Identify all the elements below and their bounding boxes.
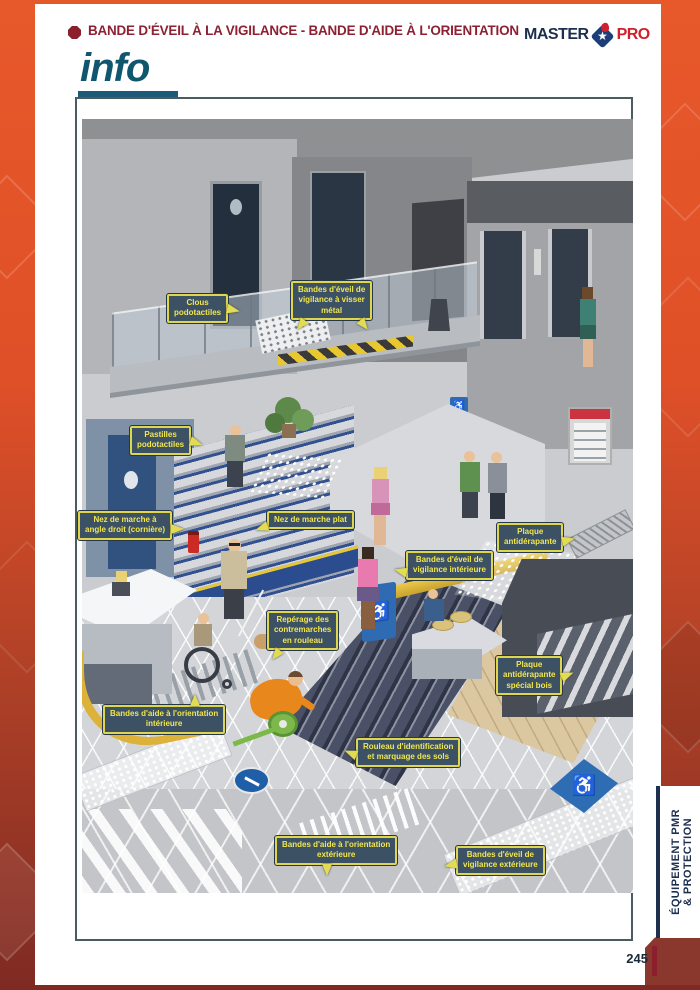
- blind-man-glasses: [229, 543, 240, 546]
- section-tab-line2: & PROTECTION: [682, 818, 694, 906]
- brand-master-text: MASTER: [524, 26, 589, 44]
- wheelchair-user: [198, 613, 209, 624]
- woman-pink-top: [361, 601, 375, 629]
- section-tab-line1: ÉQUIPEMENT PMR: [670, 809, 682, 915]
- frame-left-band: [0, 0, 35, 990]
- diamond-pattern: [0, 843, 35, 962]
- elevator-call-panel: [534, 249, 541, 275]
- door-window: [230, 199, 242, 215]
- display-case: [568, 407, 612, 465]
- woman-pink-top: [357, 587, 379, 601]
- man-at-counter: [428, 589, 438, 599]
- blonde-woman: [371, 503, 390, 515]
- wheelchair-front-wheel: [222, 679, 232, 689]
- blonde-woman: [372, 479, 389, 503]
- blue-floor-marker: [233, 767, 270, 794]
- frame-top-strip: [0, 0, 700, 4]
- wheelchair-wheel: [184, 647, 220, 683]
- catalog-page: BANDE D'ÉVEIL À LA VIGILANCE - BANDE D'A…: [0, 0, 700, 990]
- worker-head: [288, 671, 303, 686]
- wheelchair-user: [194, 624, 212, 646]
- fire-extinguisher: [188, 531, 199, 553]
- section-tab-equipement-pmr: ÉQUIPEMENT PMR & PROTECTION: [656, 786, 700, 938]
- guide-dog: [254, 634, 286, 649]
- info-heading: info: [80, 46, 149, 91]
- receptionist: [116, 571, 127, 582]
- man-green-shirt: [462, 492, 478, 518]
- person-walkway: [227, 461, 243, 487]
- kiosk-emblem: [124, 471, 138, 489]
- woman-pink-top: [358, 559, 378, 587]
- plant-pot: [282, 424, 296, 438]
- elevator-header-band: [467, 181, 633, 223]
- masterpro-logo: MASTER ★ PRO: [524, 24, 650, 46]
- diamond-pattern: [661, 103, 700, 222]
- crossing-stripes: [82, 809, 242, 893]
- man-green-shirt: [460, 462, 480, 492]
- diamond-pattern: [661, 621, 700, 754]
- blind-man: [221, 551, 247, 589]
- woman-teal-dress: [580, 299, 596, 325]
- woman-teal-dress: [583, 339, 593, 367]
- kiosk-door: [108, 435, 156, 569]
- anti-slip-plate: [567, 509, 633, 559]
- woman-pink-top: [362, 547, 374, 559]
- elevator-door-left: [480, 231, 526, 339]
- man-gray-shirt: [491, 452, 502, 463]
- frame-bottom-strip: [0, 985, 700, 990]
- green-tape-roll: [268, 711, 298, 737]
- blind-man: [224, 589, 244, 619]
- diamond-pattern: [661, 276, 700, 437]
- receptionist: [112, 582, 130, 596]
- man-gray-shirt: [490, 493, 505, 519]
- section-tab-text: ÉQUIPEMENT PMR & PROTECTION: [660, 788, 700, 936]
- isometric-illustration: ♿ ♿ ♿: [82, 119, 633, 893]
- diamond-pattern: [0, 541, 35, 674]
- guide-dog: [280, 626, 291, 637]
- diamond-pattern: [0, 175, 35, 280]
- blonde-woman: [374, 515, 386, 545]
- brand-pro-text: PRO: [617, 26, 650, 44]
- hat-on-counter: [450, 611, 472, 623]
- man-gray-shirt: [488, 463, 507, 493]
- info-counter-front: [412, 649, 482, 679]
- person-walkway: [225, 435, 245, 461]
- page-number: 245: [608, 951, 648, 966]
- man-at-counter: [424, 599, 444, 621]
- woman-teal-dress: [580, 325, 596, 339]
- man-green-shirt: [464, 451, 475, 462]
- page-number-bar: [652, 946, 657, 976]
- page-title: BANDE D'ÉVEIL À LA VIGILANCE - BANDE D'A…: [88, 22, 519, 38]
- a-frame-sign: [428, 299, 450, 331]
- masterpro-logo-icon: ★: [591, 24, 615, 46]
- header-bullet-icon: [68, 26, 81, 39]
